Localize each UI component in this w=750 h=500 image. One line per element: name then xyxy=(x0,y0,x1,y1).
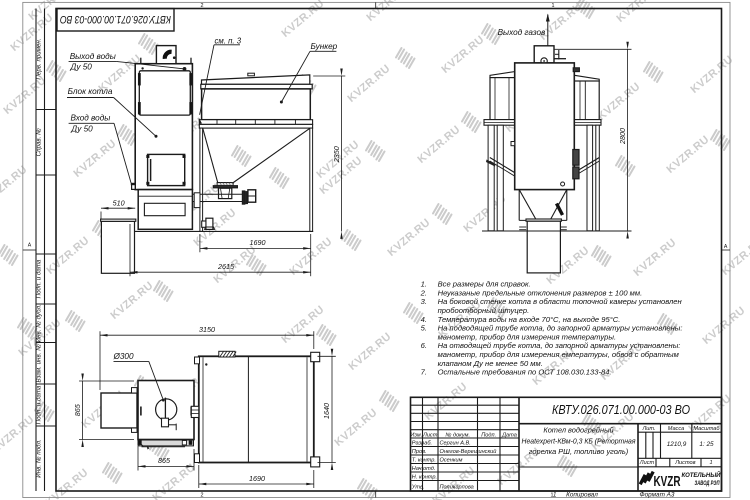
svg-text:см. п. 3: см. п. 3 xyxy=(215,36,242,45)
svg-text:Т. контр.: Т. контр. xyxy=(412,458,436,464)
svg-text:2: 2 xyxy=(201,492,204,498)
svg-text:Онегов-Верещинский: Онегов-Верещинский xyxy=(440,448,497,455)
svg-text:Ду 50: Ду 50 xyxy=(70,63,93,72)
svg-text:865: 865 xyxy=(73,403,82,416)
svg-text:2615: 2615 xyxy=(217,262,235,271)
svg-text:Инв. № подл.: Инв. № подл. xyxy=(36,439,43,477)
svg-text:КОТЕЛЬНЫЙ: КОТЕЛЬНЫЙ xyxy=(682,470,721,479)
svg-text:Взам. инв. №: Взам. инв. № xyxy=(36,344,43,383)
svg-text:1690: 1690 xyxy=(249,474,265,483)
svg-text:2800: 2800 xyxy=(618,128,627,145)
svg-text:№ докум.: № докум. xyxy=(445,432,470,438)
svg-text:1640: 1640 xyxy=(322,403,331,419)
svg-text:Сергин А.В.: Сергин А.В. xyxy=(440,441,471,447)
svg-text:5.: 5. xyxy=(421,324,427,333)
svg-text:1: 1 xyxy=(709,460,712,466)
svg-text:Лит.: Лит. xyxy=(641,426,655,432)
svg-text:7.: 7. xyxy=(421,368,427,377)
svg-text:Бункер: Бункер xyxy=(311,42,338,51)
svg-text:Ду 50: Ду 50 xyxy=(70,125,93,134)
svg-text:Выход газов: Выход газов xyxy=(498,28,546,37)
svg-text:Инв. № дубл.: Инв. № дубл. xyxy=(36,304,43,342)
svg-text:3150: 3150 xyxy=(199,325,215,334)
svg-text:6.: 6. xyxy=(421,341,427,350)
svg-text:Нач.отд.: Нач.отд. xyxy=(412,466,436,472)
svg-text:510: 510 xyxy=(113,198,125,207)
svg-text:Осенким: Осенким xyxy=(440,458,463,464)
svg-text:КВТУ.026.071.00.000-03 ВО: КВТУ.026.071.00.000-03 ВО xyxy=(552,403,690,417)
svg-text:Н. контр.: Н. контр. xyxy=(412,475,437,481)
svg-text:Блок котла: Блок котла xyxy=(68,87,113,96)
svg-text:KVZR: KVZR xyxy=(654,473,681,490)
svg-text:Формат А3: Формат А3 xyxy=(640,491,675,498)
svg-text:Остальные требования по ОСТ 10: Остальные требования по ОСТ 108.030.133-… xyxy=(438,368,612,377)
svg-text:2350: 2350 xyxy=(332,146,341,163)
svg-text:Копировал: Копировал xyxy=(566,491,598,498)
svg-text:2.: 2. xyxy=(420,288,427,297)
svg-text:клапаном Ду не менее 50 мм.: клапаном Ду не менее 50 мм. xyxy=(438,359,543,368)
svg-text:горелка РШ, топливо уголь): горелка РШ, топливо уголь) xyxy=(529,447,629,456)
svg-text:Неуказаные предельные отклонен: Неуказаные предельные отклонения размеро… xyxy=(438,288,643,297)
svg-text:Подп. и дата: Подп. и дата xyxy=(36,385,43,424)
svg-text:Лист: Лист xyxy=(639,460,655,466)
svg-text:4.: 4. xyxy=(421,315,427,324)
svg-text:1.: 1. xyxy=(421,280,427,289)
svg-text:1: 25: 1: 25 xyxy=(699,441,714,448)
svg-text:3.: 3. xyxy=(421,297,427,306)
svg-text:На подводящей трубе котла, до: На подводящей трубе котла, до запорной а… xyxy=(438,324,683,333)
svg-text:Лист: Лист xyxy=(422,432,438,438)
svg-text:865: 865 xyxy=(158,456,171,465)
svg-text:2: 2 xyxy=(201,3,204,9)
svg-text:А: А xyxy=(724,244,728,250)
svg-text:Подп. и дата: Подп. и дата xyxy=(36,259,43,298)
svg-text:Пров.: Пров. xyxy=(412,449,427,455)
svg-text:ЗАВОД РЭП: ЗАВОД РЭП xyxy=(695,480,720,487)
svg-text:Heatexpert-КВм-0,3 КБ (Ретортн: Heatexpert-КВм-0,3 КБ (Ретортная xyxy=(522,437,636,446)
svg-text:Вход воды: Вход воды xyxy=(71,114,111,123)
svg-text:Дата: Дата xyxy=(501,432,517,438)
svg-text:А: А xyxy=(28,243,32,249)
svg-text:Перв. примен.: Перв. примен. xyxy=(36,38,43,79)
svg-text:Поликарпова: Поликарпова xyxy=(440,485,474,491)
svg-text:Выход воды: Выход воды xyxy=(70,52,116,61)
svg-text:На отводящей трубе котла, до з: На отводящей трубе котла, до запорной ар… xyxy=(438,341,681,350)
svg-text:манометр, прибор для измерения: манометр, прибор для измерения температу… xyxy=(438,332,616,341)
svg-text:Все размеры для справок.: Все размеры для справок. xyxy=(438,280,531,289)
svg-text:Изм.: Изм. xyxy=(410,432,422,438)
svg-text:Утв.: Утв. xyxy=(411,485,425,491)
svg-text:Котел водогрейный: Котел водогрейный xyxy=(543,426,613,435)
svg-text:Листов: Листов xyxy=(674,460,695,466)
svg-text:Разраб.: Разраб. xyxy=(412,441,432,447)
svg-text:1690: 1690 xyxy=(250,238,266,247)
svg-text:Ø300: Ø300 xyxy=(113,352,134,361)
svg-text:1: 1 xyxy=(553,491,557,498)
svg-text:1: 1 xyxy=(552,3,555,9)
svg-text:Масса: Масса xyxy=(668,426,685,432)
svg-text:Подп.: Подп. xyxy=(481,432,496,438)
svg-text:пробоотборный штуцер.: пробоотборный штуцер. xyxy=(438,306,530,315)
svg-text:На боковой стенке котла в обла: На боковой стенке котла в области топочн… xyxy=(438,297,683,306)
svg-text:Справ. №: Справ. № xyxy=(36,128,43,156)
svg-text:Температура воды на входе 70°С: Температура воды на входе 70°С, на выход… xyxy=(438,315,621,324)
svg-text:1210,9: 1210,9 xyxy=(667,441,687,448)
svg-text:манометр, прибор для измерения: манометр, прибор для измерения емператур… xyxy=(438,350,680,359)
svg-text:КВТУ.026.071.00.000-03 ВО: КВТУ.026.071.00.000-03 ВО xyxy=(60,13,171,25)
svg-text:Масштаб: Масштаб xyxy=(693,426,720,432)
